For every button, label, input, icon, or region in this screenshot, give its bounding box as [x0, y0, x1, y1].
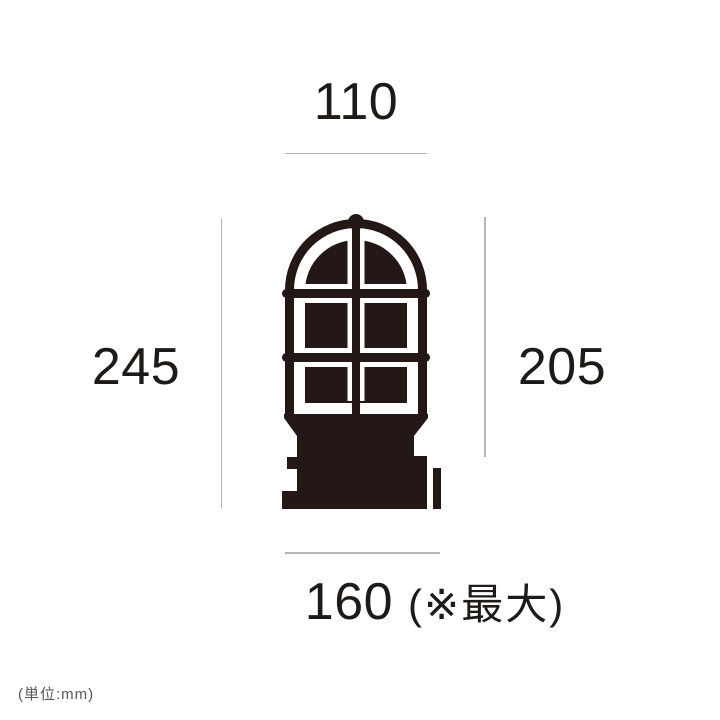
- lamp-side-conduit: [433, 468, 441, 509]
- dimension-label-bottom-width: 160 (※最大): [275, 576, 595, 628]
- dimension-line-bottom: [285, 552, 440, 554]
- dimension-diagram-canvas: 110 245 205 160 (※最大) (単位:mm): [0, 0, 720, 720]
- lamp-base: [282, 414, 428, 509]
- dimension-bottom-value: 160: [305, 573, 393, 631]
- unit-note: (単位:mm): [18, 683, 94, 704]
- dimension-bottom-note: (※最大): [408, 581, 565, 628]
